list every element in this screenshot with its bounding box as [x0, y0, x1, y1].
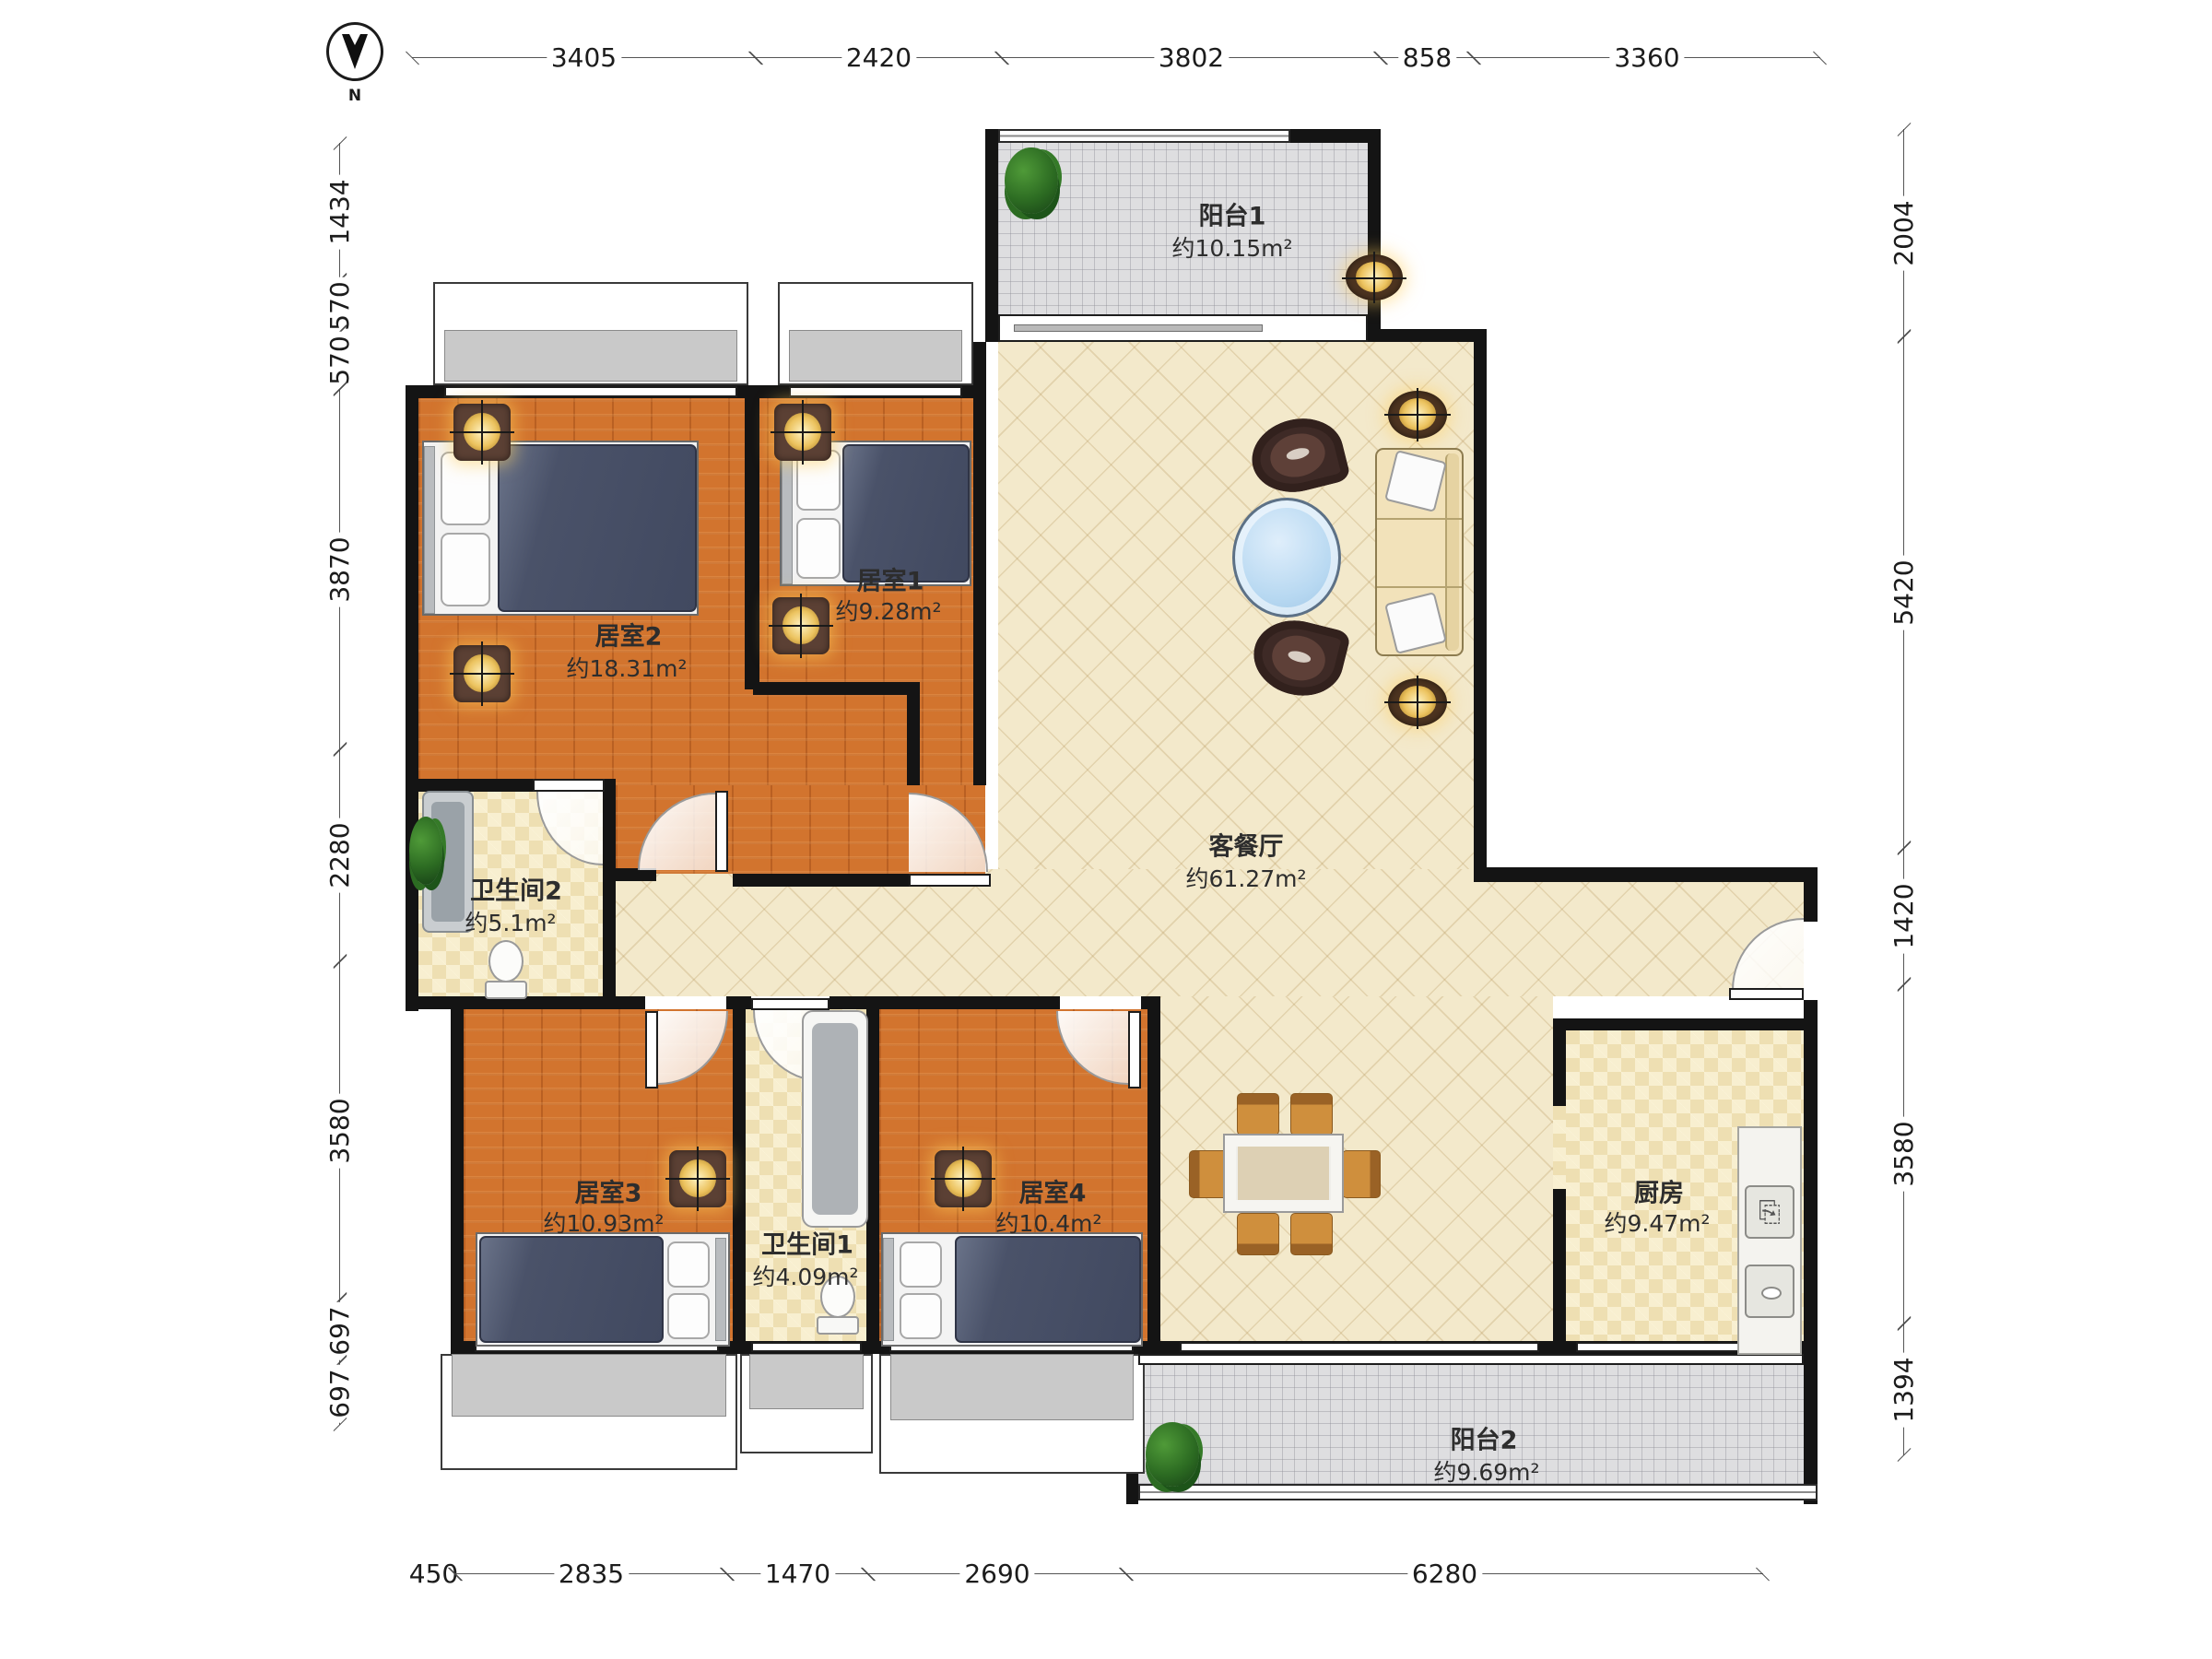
stove-burner: [1761, 1287, 1782, 1300]
dim-right-4: 3580: [1903, 984, 1904, 1324]
kitchen-door-threshold: [1553, 1106, 1566, 1189]
dining-table: [1223, 1134, 1344, 1213]
lamp-crosshair: [481, 400, 483, 464]
dim-value: 2004: [1891, 195, 1917, 270]
dim-top-5: 3360: [1474, 57, 1820, 58]
window-bathroom1: [751, 1342, 862, 1352]
dim-value: 3870: [327, 532, 353, 606]
dim-value: 6280: [1407, 1561, 1482, 1587]
bay-window-bedroom3-glass: [452, 1354, 726, 1417]
ceiling-lamp-icon: [1346, 254, 1403, 300]
entry-door-leaf: [1729, 988, 1804, 1000]
dim-value: 858: [1398, 45, 1456, 71]
sofa: [1375, 448, 1464, 656]
room-label-bathroom1: 卫生间1: [761, 1225, 853, 1261]
dim-value: 1470: [760, 1561, 835, 1587]
wall-rooms34-top-c: [829, 996, 1060, 1009]
room-area-bedroom4: 约10.4m²: [995, 1206, 1101, 1239]
lamp-crosshair: [1417, 388, 1418, 441]
bedroom3-door-leaf: [645, 1011, 658, 1088]
room-label-bedroom3: 居室3: [575, 1173, 642, 1209]
room-area-bedroom2: 约18.31m²: [567, 651, 688, 684]
dim-left-8: 697: [339, 1362, 340, 1425]
north-arrow-notch: [349, 34, 360, 45]
room-label-living: 客餐厅: [1209, 827, 1284, 863]
bathtub-inner: [812, 1023, 858, 1215]
bedroom1-door-leaf: [909, 874, 991, 887]
dining-chair: [1342, 1150, 1381, 1198]
armchair-sheen: [1286, 446, 1311, 461]
kitchen-stove: [1745, 1265, 1794, 1318]
wall-bed4-right: [1147, 996, 1160, 1354]
wall-balcony1-left: [985, 129, 998, 342]
dim-value: 2690: [959, 1561, 1034, 1587]
dim-bottom-3: 1470: [727, 1573, 868, 1574]
dim-bottom-4: 2690: [868, 1573, 1126, 1574]
ceiling-lamp-icon: [774, 404, 831, 461]
wall-bed2-bed1-divider: [745, 385, 759, 689]
window-dining-balcony2: [1180, 1342, 1539, 1352]
room-label-bedroom1: 居室1: [857, 561, 924, 597]
room-label-bathroom2: 卫生间2: [470, 871, 562, 907]
lamp-crosshair: [802, 400, 804, 464]
sofa-seam: [1377, 586, 1462, 588]
wall-balcony1-topright: [1290, 129, 1381, 143]
dim-left-7: 697: [339, 1300, 340, 1362]
wall-balcony1-right: [1368, 129, 1381, 342]
bathroom2-door-leaf: [533, 779, 605, 792]
lamp-crosshair: [1417, 676, 1418, 729]
bedroom3-bed-blanket: [479, 1236, 664, 1343]
dim-left-3: 570: [339, 332, 340, 389]
dim-value: 3580: [1891, 1116, 1917, 1191]
bay-window-bedroom2-glass: [444, 330, 737, 382]
bedroom2-bed-blanket: [498, 444, 697, 612]
dim-top-4: 858: [1381, 57, 1474, 58]
bedroom3-bed-pillow: [667, 1293, 710, 1339]
dim-value: 3405: [547, 45, 621, 71]
sofa-seam: [1377, 518, 1462, 520]
room-label-balcony1: 阳台1: [1199, 196, 1266, 232]
room-label-kitchen: 厨房: [1634, 1173, 1684, 1209]
bedroom1-bed-pillow: [796, 518, 841, 579]
wall-living-topright: [1368, 329, 1487, 342]
room-area-bedroom1: 约9.28m²: [835, 594, 941, 627]
bedroom2-bed-pillow: [441, 533, 490, 606]
dim-top-2: 2420: [756, 57, 1002, 58]
ceiling-lamp-icon: [935, 1150, 992, 1207]
balcony2-top-band: [1138, 1354, 1804, 1365]
dim-value: 697: [327, 1364, 353, 1422]
room-area-balcony1: 约10.15m²: [1172, 230, 1293, 264]
toilet-tank: [817, 1316, 859, 1335]
dining-chair: [1189, 1150, 1228, 1198]
lamp-crosshair: [697, 1147, 699, 1210]
dim-value: 570: [327, 276, 353, 335]
dim-value: 3802: [1154, 45, 1229, 71]
plant-icon: [1146, 1422, 1199, 1487]
dim-top-1: 3405: [412, 57, 756, 58]
dim-left-5: 2280: [339, 749, 340, 961]
dim-value: 2835: [554, 1561, 629, 1587]
lamp-crosshair: [800, 594, 802, 657]
floor-plan: ⎘ 阳台1 约10.15m² 居室2 约18.31m² 居室1 约9.28m² …: [0, 0, 2212, 1659]
armchair-cushion: [1267, 630, 1331, 687]
plant-icon: [1005, 147, 1058, 214]
wall-left-outer: [406, 385, 418, 1011]
wall-bed1-south-h: [753, 682, 920, 695]
dim-value: 1394: [1891, 1352, 1917, 1427]
room-area-bathroom2: 约5.1m²: [465, 905, 556, 938]
toilet-tank: [485, 981, 527, 999]
wall-corridor-bottom: [733, 874, 911, 887]
room-area-living: 约61.27m²: [1186, 861, 1307, 894]
bedroom2-door-leaf: [715, 791, 728, 872]
window-bedroom2: [444, 386, 737, 397]
dim-right-5: 1394: [1903, 1324, 1904, 1455]
dim-right-2: 5420: [1903, 336, 1904, 848]
lamp-crosshair: [1373, 252, 1375, 303]
dim-value: 3360: [1609, 45, 1684, 71]
ceiling-lamp-icon: [772, 597, 829, 654]
bay-window-bedroom1-glass: [789, 330, 962, 382]
wall-bed2-bottom: [406, 779, 533, 792]
dim-bottom-1: 450: [412, 1573, 455, 1574]
balcony1-sliding-track: [1014, 324, 1263, 332]
dining-table-top: [1238, 1147, 1329, 1200]
kitchen-sink: ⎘: [1745, 1185, 1794, 1239]
bathroom1-door-leaf: [751, 998, 829, 1010]
dim-top-3: 3802: [1002, 57, 1381, 58]
toilet-bowl: [488, 940, 524, 982]
bathtub: [802, 1010, 868, 1228]
room-label-bedroom2: 居室2: [595, 617, 663, 653]
bay-window-bathroom1-glass: [749, 1354, 864, 1409]
ceiling-lamp-icon: [453, 404, 511, 461]
lamp-crosshair: [962, 1147, 964, 1210]
kitchen-counter: [1737, 1126, 1802, 1355]
room-area-balcony2: 约9.69m²: [1433, 1454, 1539, 1488]
dim-left-6: 3580: [339, 961, 340, 1300]
room-area-bedroom3: 约10.93m²: [544, 1206, 665, 1239]
room-label-bedroom4: 居室4: [1019, 1173, 1087, 1209]
balcony1-railing: [998, 129, 1290, 143]
ceiling-lamp-icon: [669, 1150, 726, 1207]
dim-value: 2420: [841, 45, 916, 71]
wall-right-outer-b: [1804, 1000, 1818, 1504]
wall-living-right: [1474, 342, 1487, 869]
wall-living-left: [973, 342, 986, 785]
bedroom3-bed-headboard: [715, 1238, 726, 1341]
dim-left-4: 3870: [339, 389, 340, 749]
room-area-bathroom1: 约4.09m²: [752, 1259, 858, 1292]
bay-window-bedroom4-glass: [890, 1354, 1134, 1420]
room-label-balcony2: 阳台2: [1451, 1420, 1518, 1456]
bedroom3-bed: [476, 1232, 730, 1347]
dining-chair: [1290, 1093, 1333, 1135]
dim-value: 3580: [327, 1093, 353, 1168]
wall-kitchen-left-a: [1553, 1018, 1566, 1106]
bedroom4-door-leaf: [1128, 1011, 1141, 1088]
bedroom4-bed-headboard: [883, 1238, 894, 1341]
wall-kitchen-left-b: [1553, 1189, 1566, 1354]
dining-chair: [1290, 1213, 1333, 1255]
bedroom4-bed: [881, 1232, 1143, 1347]
dim-left-1: 1434: [339, 143, 340, 280]
dim-value: 5420: [1891, 555, 1917, 629]
dining-chair: [1237, 1213, 1279, 1255]
bedroom1-bed-headboard: [782, 446, 793, 584]
dim-value: 1420: [1891, 878, 1917, 953]
sofa-pillow: [1384, 450, 1447, 512]
dim-value: 1434: [327, 174, 353, 249]
lamp-crosshair: [481, 641, 483, 705]
dim-value: 450: [405, 1561, 463, 1587]
dim-bottom-5: 6280: [1126, 1573, 1763, 1574]
plant-icon: [409, 817, 442, 885]
dim-bottom-2: 2835: [455, 1573, 727, 1574]
bedroom4-bed-blanket: [955, 1236, 1141, 1343]
wall-right-outer-a: [1804, 867, 1818, 922]
toilet: [481, 940, 531, 1001]
wall-kitchen-top: [1553, 1018, 1818, 1030]
north-label: N: [348, 87, 361, 105]
north-arrow-icon: [326, 22, 383, 81]
wall-bath1-bed4: [866, 996, 879, 1354]
dim-value: 570: [327, 331, 353, 389]
bedroom4-bed-pillow: [900, 1241, 942, 1288]
wall-bed3-left: [451, 996, 464, 1354]
window-bedroom1: [789, 386, 962, 397]
dim-left-2: 570: [339, 280, 340, 332]
bedroom4-bed-pillow: [900, 1293, 942, 1339]
ceiling-lamp-icon: [453, 645, 511, 702]
dining-chair: [1237, 1093, 1279, 1135]
bedroom3-bed-pillow: [667, 1241, 710, 1288]
wall-bed3-bath1: [733, 996, 746, 1354]
bedroom2-bed-headboard: [424, 446, 435, 614]
ceiling-lamp-icon: [1388, 391, 1447, 439]
ceiling-lamp-icon: [1388, 678, 1447, 726]
armchair-sheen: [1288, 650, 1312, 665]
dim-value: 697: [327, 1301, 353, 1359]
room-area-kitchen: 约9.47m²: [1604, 1206, 1710, 1239]
wall-foyer-top: [1474, 867, 1818, 882]
sofa-pillow: [1384, 592, 1447, 654]
coffee-table: [1232, 498, 1341, 618]
dim-right-3: 1420: [1903, 848, 1904, 984]
wall-bath2-right: [603, 779, 616, 998]
dim-value: 2280: [327, 818, 353, 892]
armchair-cushion: [1265, 428, 1330, 483]
wall-corridor-stub: [603, 868, 656, 881]
dim-right-1: 2004: [1903, 129, 1904, 336]
bedroom2-bed: [422, 441, 699, 616]
sofa-backrest: [1445, 453, 1459, 651]
wall-bed1-south-v: [907, 682, 920, 785]
